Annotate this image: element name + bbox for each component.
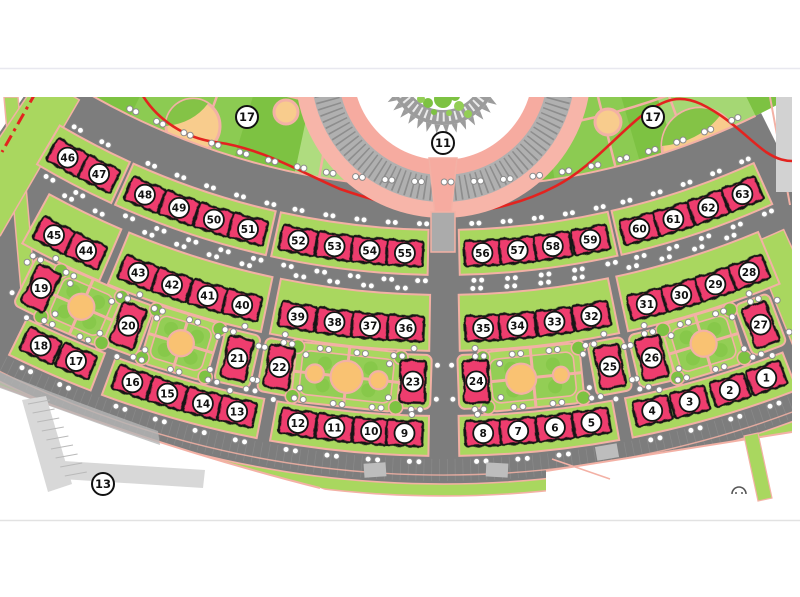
tree-dot: [392, 219, 398, 225]
tree-dot: [745, 156, 751, 162]
building-number: 43: [131, 268, 146, 280]
building-number: 22: [272, 362, 287, 374]
tree-dot: [633, 263, 639, 269]
tree-dot: [721, 308, 727, 314]
tree-dot: [472, 345, 478, 351]
building-38[interactable]: 38: [315, 307, 354, 336]
building-number: 8: [480, 428, 487, 440]
tree-dot: [323, 169, 329, 175]
tree-dot: [9, 290, 15, 296]
tree-dot: [554, 347, 560, 353]
tree-dot: [270, 397, 276, 403]
tree-dot: [271, 202, 277, 208]
tree-dot: [755, 296, 761, 302]
tree-dot: [330, 170, 336, 176]
tree-dot: [728, 416, 734, 422]
tree-dot: [339, 402, 345, 408]
tree-dot: [469, 220, 475, 226]
building-number: 11: [327, 423, 342, 435]
tree-dot: [201, 430, 207, 436]
tree-dot: [67, 281, 73, 287]
tree-dot: [692, 246, 698, 252]
tree-dot: [698, 235, 704, 241]
tree-dot: [588, 163, 594, 169]
building-number: 17: [69, 356, 84, 368]
tree-dot: [361, 282, 367, 288]
tree-dot: [145, 160, 151, 166]
park-path: [527, 23, 688, 69]
building-36[interactable]: 36: [387, 315, 424, 342]
building-number: 7: [515, 426, 522, 438]
tree-dot: [546, 271, 552, 277]
tree-dot: [479, 277, 485, 283]
tree-dot: [242, 323, 248, 329]
building-number: 16: [125, 377, 140, 389]
tree-dot: [471, 277, 477, 283]
tree-dot: [227, 388, 233, 394]
tree-dot: [750, 354, 756, 360]
tree-dot: [187, 317, 193, 323]
tree-dot: [347, 273, 353, 279]
tree-dot: [786, 329, 792, 335]
tree-dot: [281, 340, 287, 346]
building-number: 20: [121, 320, 136, 332]
tree-dot: [50, 177, 56, 183]
tree-dot: [509, 351, 515, 357]
zone-number: 17: [239, 110, 255, 124]
tree-dot: [500, 219, 506, 225]
tree-dot: [716, 168, 722, 174]
tree-dot: [724, 235, 730, 241]
tree-dot: [262, 344, 268, 350]
zone-number: 13: [95, 477, 111, 491]
tree-dot: [497, 361, 503, 367]
building-55[interactable]: 55: [386, 240, 423, 267]
tree-dot: [559, 399, 565, 405]
park-plaza-circle: [274, 100, 298, 124]
tree-dot: [500, 176, 506, 182]
building-number: 59: [583, 235, 598, 247]
tree-dot: [24, 259, 30, 265]
building-59[interactable]: 59: [570, 224, 610, 255]
tree-dot: [395, 285, 401, 291]
tree-dot: [142, 347, 148, 353]
tree-dot: [579, 266, 585, 272]
tree-dot: [422, 278, 428, 284]
building-12[interactable]: 12: [278, 408, 317, 438]
tree-dot: [674, 243, 680, 249]
tree-dot: [666, 246, 672, 252]
building-6[interactable]: 6: [536, 413, 575, 442]
tree-dot: [52, 311, 58, 317]
playground-circle: [305, 364, 325, 384]
tree-dot: [518, 351, 524, 357]
tree-dot: [674, 139, 680, 145]
building-number: 57: [510, 245, 525, 257]
tree-dot: [538, 272, 544, 278]
building-number: 51: [241, 224, 256, 236]
building-number: 58: [545, 241, 560, 253]
tree-dot: [354, 216, 360, 222]
tree-dot: [195, 319, 201, 325]
tree-dot: [174, 172, 180, 178]
tree-dot: [537, 172, 543, 178]
tree-dot: [481, 353, 487, 359]
tree-dot: [641, 253, 647, 259]
building-24[interactable]: 24: [463, 360, 490, 403]
tree-dot: [572, 275, 578, 281]
tree-dot: [531, 215, 537, 221]
building-number: 32: [584, 311, 599, 323]
tree-dot: [646, 148, 652, 154]
tree-dot: [272, 159, 278, 165]
tree-dot: [152, 163, 158, 169]
tree-dot: [418, 179, 424, 185]
tree-dot: [595, 162, 601, 168]
tree-dot: [668, 333, 674, 339]
playground-circle: [552, 366, 570, 384]
tree-dot: [624, 155, 630, 161]
map-canvas: 4647484950515253545556575859606162634544…: [0, 0, 800, 516]
building-number: 49: [172, 203, 187, 215]
building-number: 36: [398, 323, 413, 335]
tree-dot: [747, 299, 753, 305]
tree-dot: [210, 185, 216, 191]
tree-dot: [601, 331, 607, 337]
tree-dot: [294, 164, 300, 170]
tree-dot: [80, 193, 86, 199]
tree-dot: [288, 264, 294, 270]
tree-dot: [181, 175, 187, 181]
tree-dot: [675, 377, 681, 383]
tree-dot: [621, 344, 627, 350]
tree-dot: [19, 365, 25, 371]
building-11[interactable]: 11: [315, 413, 354, 442]
tree-dot: [583, 342, 589, 348]
building-34[interactable]: 34: [498, 312, 536, 340]
tree-dot: [677, 322, 683, 328]
tree-dot: [176, 369, 182, 375]
tree-dot: [85, 337, 91, 343]
tree-dot: [207, 367, 213, 373]
tree-dot: [258, 257, 264, 263]
building-number: 34: [510, 321, 525, 333]
tree-dot: [478, 285, 484, 291]
tree-dot: [385, 219, 391, 225]
tree-dot: [73, 190, 79, 196]
tree-dot: [481, 406, 487, 412]
building-56[interactable]: 56: [464, 240, 501, 267]
tree-dot: [550, 401, 556, 407]
building-53[interactable]: 53: [315, 232, 354, 262]
tree-dot: [538, 215, 544, 221]
tree-dot: [127, 106, 133, 112]
tree-dot: [97, 330, 103, 336]
path-pad: [486, 462, 509, 477]
tree-dot: [242, 439, 248, 445]
tree-dot: [151, 305, 157, 311]
building-number: 13: [230, 406, 245, 418]
tree-dot: [63, 269, 69, 275]
tree-dot: [731, 232, 737, 238]
tree-dot: [291, 395, 297, 401]
tree-dot: [152, 416, 158, 422]
building-5[interactable]: 5: [572, 407, 611, 437]
tree-dot: [133, 109, 139, 115]
tree-dot: [283, 446, 289, 452]
tree-dot: [411, 346, 417, 352]
building-7[interactable]: 7: [499, 417, 537, 445]
tree-dot: [589, 395, 595, 401]
tree-dot: [666, 254, 672, 260]
tree-dot: [330, 213, 336, 219]
tree-dot: [652, 146, 658, 152]
building-number: 10: [364, 426, 379, 438]
tree-dot: [559, 169, 565, 175]
tree-dot: [737, 413, 743, 419]
building-number: 31: [639, 299, 654, 311]
tree-dot: [247, 263, 253, 269]
tree-dot: [326, 347, 332, 353]
tree-dot: [676, 366, 682, 372]
building-number: 41: [200, 291, 215, 303]
tree-dot: [507, 176, 513, 182]
building-number: 47: [92, 169, 107, 181]
tree-dot: [758, 351, 764, 357]
tree-dot: [214, 254, 220, 260]
tree-dot: [187, 132, 193, 138]
tree-dot: [389, 177, 395, 183]
building-9[interactable]: 9: [386, 420, 423, 446]
tree-dot: [41, 318, 47, 324]
tree-dot: [768, 208, 774, 214]
tree-dot: [92, 208, 98, 214]
tree-dot: [441, 179, 447, 185]
tree-dot: [399, 353, 405, 359]
tree-dot: [450, 396, 456, 402]
building-number: 24: [469, 376, 484, 388]
building-57[interactable]: 57: [499, 236, 537, 264]
tree-dot: [730, 224, 736, 230]
tree-dot: [62, 193, 68, 199]
zone-label-17: 17: [642, 106, 664, 128]
courtyard: [475, 340, 591, 415]
tree-dot: [113, 403, 119, 409]
tree-dot: [680, 181, 686, 187]
tree-dot: [57, 382, 63, 388]
zone-label-11: 11: [432, 132, 454, 154]
building-number: 14: [196, 398, 211, 410]
tree-dot: [706, 233, 712, 239]
tree-dot: [303, 352, 309, 358]
tree-dot: [391, 353, 397, 359]
tree-dot: [77, 334, 83, 340]
tree-dot: [641, 323, 647, 329]
building-number: 62: [701, 202, 716, 214]
tree-dot: [472, 353, 478, 359]
tree-dot: [729, 314, 735, 320]
tree-dot: [416, 459, 422, 465]
tree-dot: [634, 254, 640, 260]
tree-dot: [612, 259, 618, 265]
tree-dot: [250, 376, 256, 382]
building-number: 15: [160, 388, 175, 400]
tree-dot: [478, 178, 484, 184]
tree-dot: [71, 273, 77, 279]
plaza-tree: [450, 91, 460, 101]
building-number: 18: [33, 340, 48, 352]
tree-dot: [409, 411, 415, 417]
tree-dot: [512, 283, 518, 289]
tree-dot: [641, 331, 647, 337]
tree-dot: [688, 427, 694, 433]
zone-number: 11: [435, 136, 451, 150]
path-pad: [364, 462, 387, 478]
tree-dot: [218, 247, 224, 253]
building-number: 42: [165, 280, 180, 292]
master-plan-page: 4647484950515253545556575859606162634544…: [0, 0, 800, 597]
building-number: 33: [547, 316, 562, 328]
tree-dot: [538, 280, 544, 286]
building-23[interactable]: 23: [400, 360, 426, 403]
tree-dot: [556, 452, 562, 458]
tree-dot: [174, 241, 180, 247]
building-number: 5: [588, 417, 595, 429]
tree-dot: [49, 321, 55, 327]
tree-dot: [566, 168, 572, 174]
building-8[interactable]: 8: [465, 420, 502, 446]
tree-dot: [448, 179, 454, 185]
tree-dot: [161, 419, 167, 425]
tree-dot: [739, 159, 745, 165]
building-number: 25: [602, 361, 617, 373]
tree-dot: [415, 278, 421, 284]
tree-dot: [767, 403, 773, 409]
tree-dot: [562, 211, 568, 217]
tree-dot: [416, 221, 422, 227]
tree-dot: [381, 276, 387, 282]
building-number: 26: [644, 352, 659, 364]
tree-dot: [524, 455, 530, 461]
tree-dot: [598, 394, 604, 400]
tree-dot: [281, 262, 287, 268]
building-number: 28: [742, 267, 757, 279]
tree-dot: [256, 343, 262, 349]
building-number: 55: [398, 248, 413, 260]
tree-dot: [204, 183, 210, 189]
tree-dot: [600, 204, 606, 210]
tree-dot: [474, 411, 480, 417]
building-number: 12: [291, 418, 306, 430]
building-37[interactable]: 37: [351, 312, 389, 340]
plaza-tree: [434, 90, 452, 108]
tree-dot: [139, 357, 145, 363]
tree-dot: [626, 264, 632, 270]
tree-dot: [648, 437, 654, 443]
building-number: 48: [138, 189, 153, 201]
tree-dot: [617, 156, 623, 162]
tree-dot: [433, 396, 439, 402]
tree-dot: [656, 387, 662, 393]
tree-dot: [24, 315, 30, 321]
tree-dot: [193, 239, 199, 245]
building-number: 23: [406, 376, 421, 388]
tree-dot: [504, 283, 510, 289]
tree-dot: [565, 451, 571, 457]
tree-dot: [471, 178, 477, 184]
building-10[interactable]: 10: [352, 417, 390, 445]
tree-dot: [243, 386, 249, 392]
building-number: 63: [735, 189, 750, 201]
zone-label-13: 13: [92, 473, 114, 495]
tree-dot: [741, 346, 747, 352]
building-54[interactable]: 54: [351, 236, 389, 264]
tree-dot: [713, 311, 719, 317]
park-plaza-circle: [595, 109, 621, 135]
building-number: 37: [363, 321, 378, 333]
tree-dot: [240, 194, 246, 200]
tree-dot: [181, 130, 187, 136]
tree-dot: [250, 255, 256, 261]
tree-dot: [69, 196, 75, 202]
tree-dot: [735, 115, 741, 121]
building-number: 2: [726, 385, 733, 397]
building-33[interactable]: 33: [535, 307, 574, 336]
building-number: 56: [475, 248, 490, 260]
tree-dot: [317, 345, 323, 351]
tree-dot: [449, 362, 455, 368]
building-number: 21: [230, 353, 245, 365]
tree-dot: [646, 384, 652, 390]
tree-dot: [605, 261, 611, 267]
tree-dot: [99, 139, 105, 145]
tree-dot: [71, 124, 77, 130]
tree-dot: [701, 129, 707, 135]
tree-dot: [293, 273, 299, 279]
tree-dot: [181, 244, 187, 250]
tree-dot: [192, 427, 198, 433]
map-edge-strip: [776, 97, 792, 192]
tree-dot: [613, 396, 619, 402]
tree-dot: [130, 354, 136, 360]
tree-dot: [354, 350, 360, 356]
tree-dot: [629, 377, 635, 383]
building-number: 61: [666, 214, 681, 226]
tree-dot: [520, 404, 526, 410]
tree-dot: [359, 174, 365, 180]
building-number: 45: [47, 230, 62, 242]
tree-dot: [99, 211, 105, 217]
building-58[interactable]: 58: [533, 231, 572, 261]
tree-dot: [239, 261, 245, 267]
tree-dot: [149, 232, 155, 238]
tree-dot: [507, 218, 513, 224]
tree-dot: [361, 217, 367, 223]
building-52[interactable]: 52: [278, 225, 318, 256]
building-number: 44: [79, 246, 94, 258]
tree-dot: [28, 369, 34, 375]
tree-dot: [159, 308, 165, 314]
building-35[interactable]: 35: [465, 315, 502, 342]
tree-dot: [382, 177, 388, 183]
tree-dot: [334, 279, 340, 285]
tree-dot: [324, 452, 330, 458]
tree-dot: [369, 404, 375, 410]
building-32[interactable]: 32: [571, 301, 611, 332]
tree-dot: [657, 435, 663, 441]
tree-dot: [708, 126, 714, 132]
building-39[interactable]: 39: [278, 301, 318, 332]
